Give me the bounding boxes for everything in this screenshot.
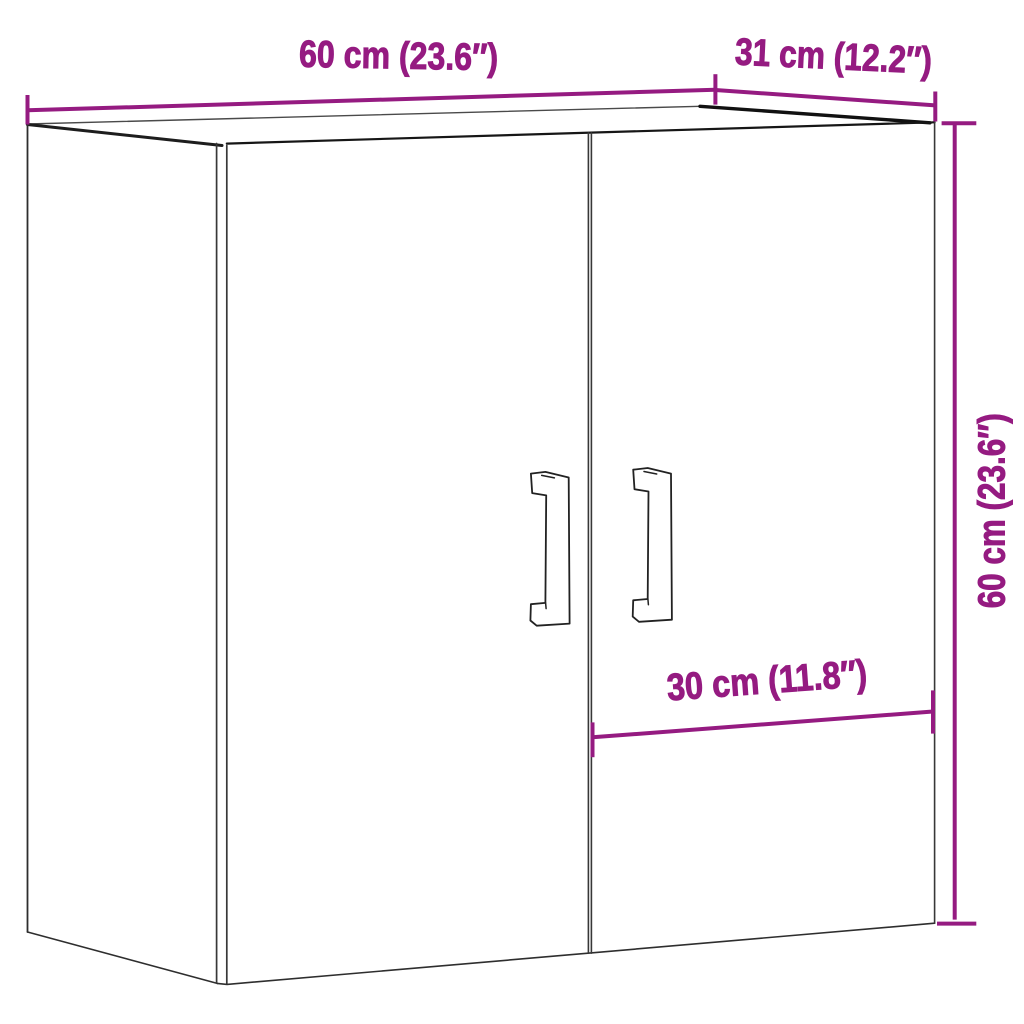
svg-text:60 cm (23.6″): 60 cm (23.6″) <box>299 34 499 79</box>
svg-text:60 cm (23.6″): 60 cm (23.6″) <box>972 413 1014 608</box>
